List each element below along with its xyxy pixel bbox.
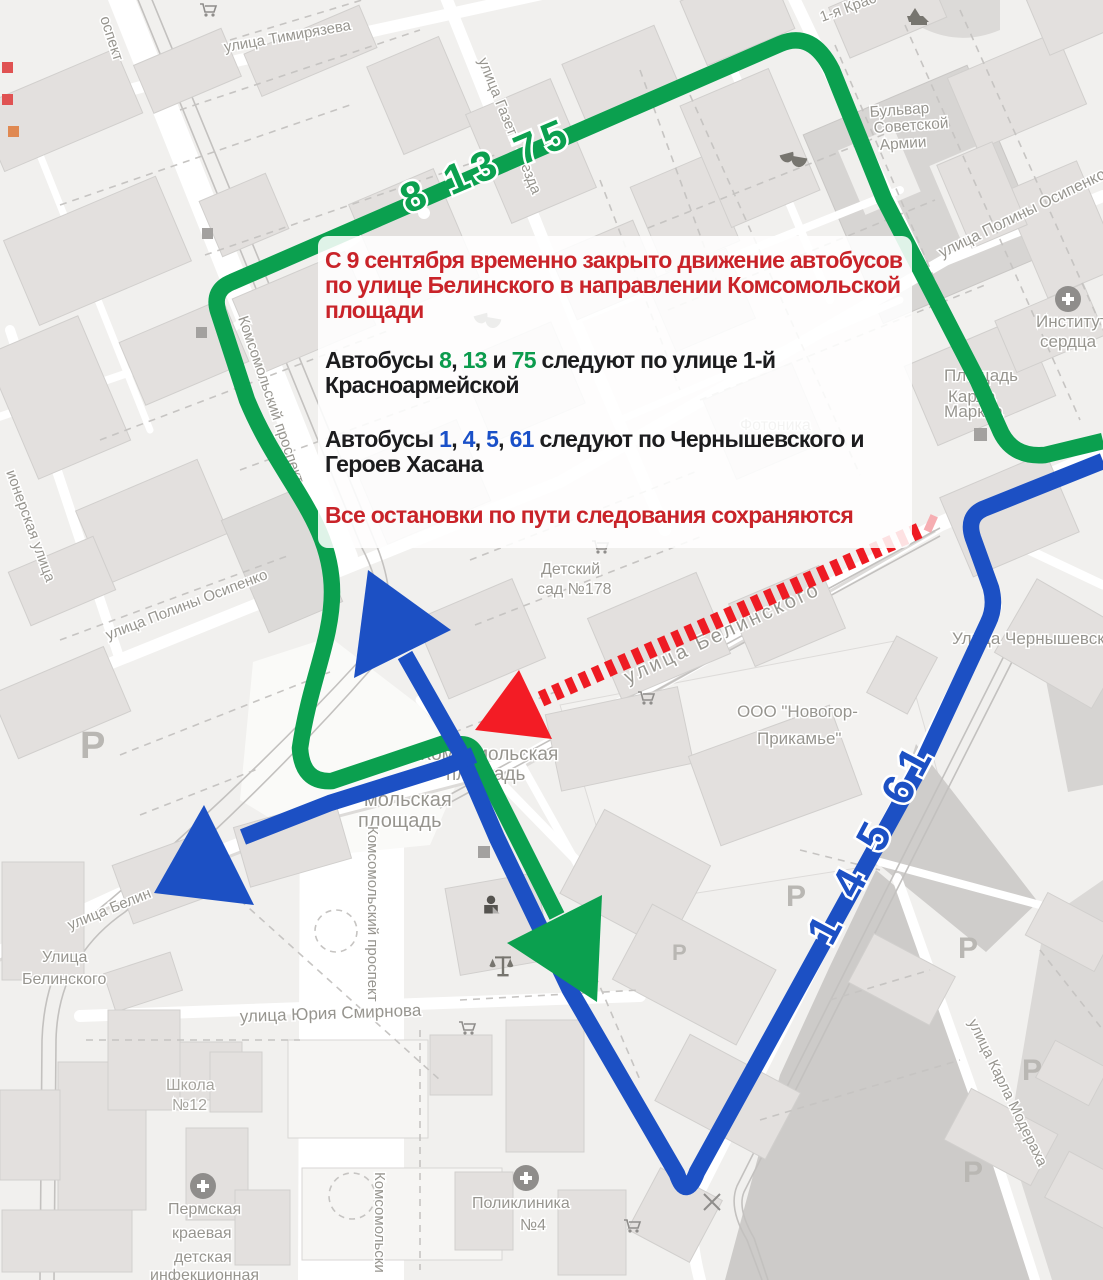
svg-text:Комсомольский проспект: Комсомольский проспект [364,826,381,1002]
svg-text:Армии: Армии [879,134,927,154]
svg-text:Автобусы 1, 4, 5, 61 следуют п: Автобусы 1, 4, 5, 61 следуют по Чернышев… [325,426,864,452]
svg-text:Пермская: Пермская [168,1201,241,1218]
svg-text:Автобусы 8, 13 и 75 следуют по: Автобусы 8, 13 и 75 следуют по улице 1-й [325,347,775,373]
svg-text:Р: Р [786,880,806,913]
svg-text:сад №178: сад №178 [537,581,612,598]
svg-text:по улице Белинского в направле: по улице Белинского в направлении Комсом… [325,272,900,298]
svg-text:Все остановки по пути следован: Все остановки по пути следования сохраня… [325,502,853,528]
svg-text:№12: №12 [172,1097,207,1114]
svg-text:Улица: Улица [42,949,88,966]
svg-text:инфекционная: инфекционная [150,1267,259,1280]
svg-text:С 9 сентября временно закрыто: С 9 сентября временно закрыто движение а… [325,247,903,273]
svg-text:№4: №4 [520,1217,546,1234]
svg-text:Институт: Институт [1036,312,1103,331]
svg-text:Красноармейской: Красноармейской [325,372,519,398]
svg-text:Белинского: Белинского [22,971,107,988]
svg-text:Героев Хасана: Героев Хасана [325,451,484,477]
svg-text:Р: Р [672,940,687,965]
svg-text:Р: Р [1022,1054,1042,1087]
svg-text:детская: детская [174,1249,232,1266]
svg-text:Р: Р [958,932,978,965]
svg-text:Школа: Школа [166,1077,215,1094]
svg-text:Р: Р [963,1156,983,1189]
svg-text:Комсомольски: Комсомольски [371,1172,388,1273]
svg-text:Поликлиника: Поликлиника [472,1195,570,1212]
svg-text:Прикамье": Прикамье" [757,729,841,748]
svg-text:Р: Р [80,725,105,767]
svg-text:Детский: Детский [541,561,600,578]
svg-text:сердца: сердца [1040,332,1097,351]
svg-text:краевая: краевая [172,1225,232,1242]
svg-text:ООО "Новогор-: ООО "Новогор- [737,702,858,721]
svg-text:площади: площади [325,297,424,323]
